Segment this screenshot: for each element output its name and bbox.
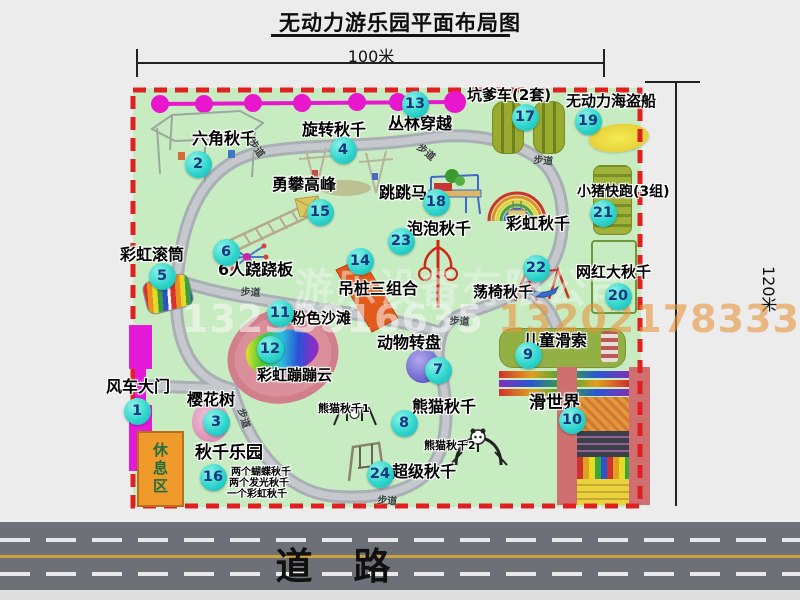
dimension-tick-top-left — [136, 49, 138, 77]
page-title: 无动力游乐园平面布局图 — [0, 7, 800, 37]
rest-area-label: 休息区 — [150, 442, 171, 496]
dimension-line-right — [675, 81, 677, 506]
windmill-gate-middle — [135, 369, 146, 405]
cherry-tree-icon — [192, 402, 229, 442]
dimension-tick-right-top — [645, 81, 700, 83]
playground-layout-diagram: 无动力游乐园平面布局图 100米 120米 — [0, 0, 800, 600]
watermark-phone: 13233816635 13202178333 — [182, 297, 800, 341]
watermark-phone-2: 13202178333 — [498, 297, 800, 341]
slide-world-section-3 — [577, 457, 629, 479]
title-underline — [271, 34, 510, 37]
pig-run-zone — [593, 165, 632, 235]
animal-carousel-icon — [406, 349, 440, 383]
watermark-phone-1: 13233816635 — [182, 297, 484, 341]
road-shoulder — [0, 590, 800, 600]
road: 道 路 — [0, 520, 800, 590]
rest-area-zone: 休息区 — [137, 431, 184, 507]
slide-world-right-wall — [629, 367, 650, 505]
kengdie-track-1 — [492, 101, 524, 154]
dimension-label-width: 100米 — [271, 43, 471, 67]
dimension-tick-top-right — [603, 49, 605, 77]
windmill-gate-top — [129, 325, 152, 369]
slide-world-left-wall — [557, 367, 577, 505]
slide-world-section-4 — [577, 479, 629, 505]
road-label: 道 路 — [210, 536, 470, 590]
kengdie-track-2 — [533, 101, 565, 154]
slide-world-section-1 — [577, 397, 629, 431]
slide-world-section-2 — [577, 431, 629, 457]
